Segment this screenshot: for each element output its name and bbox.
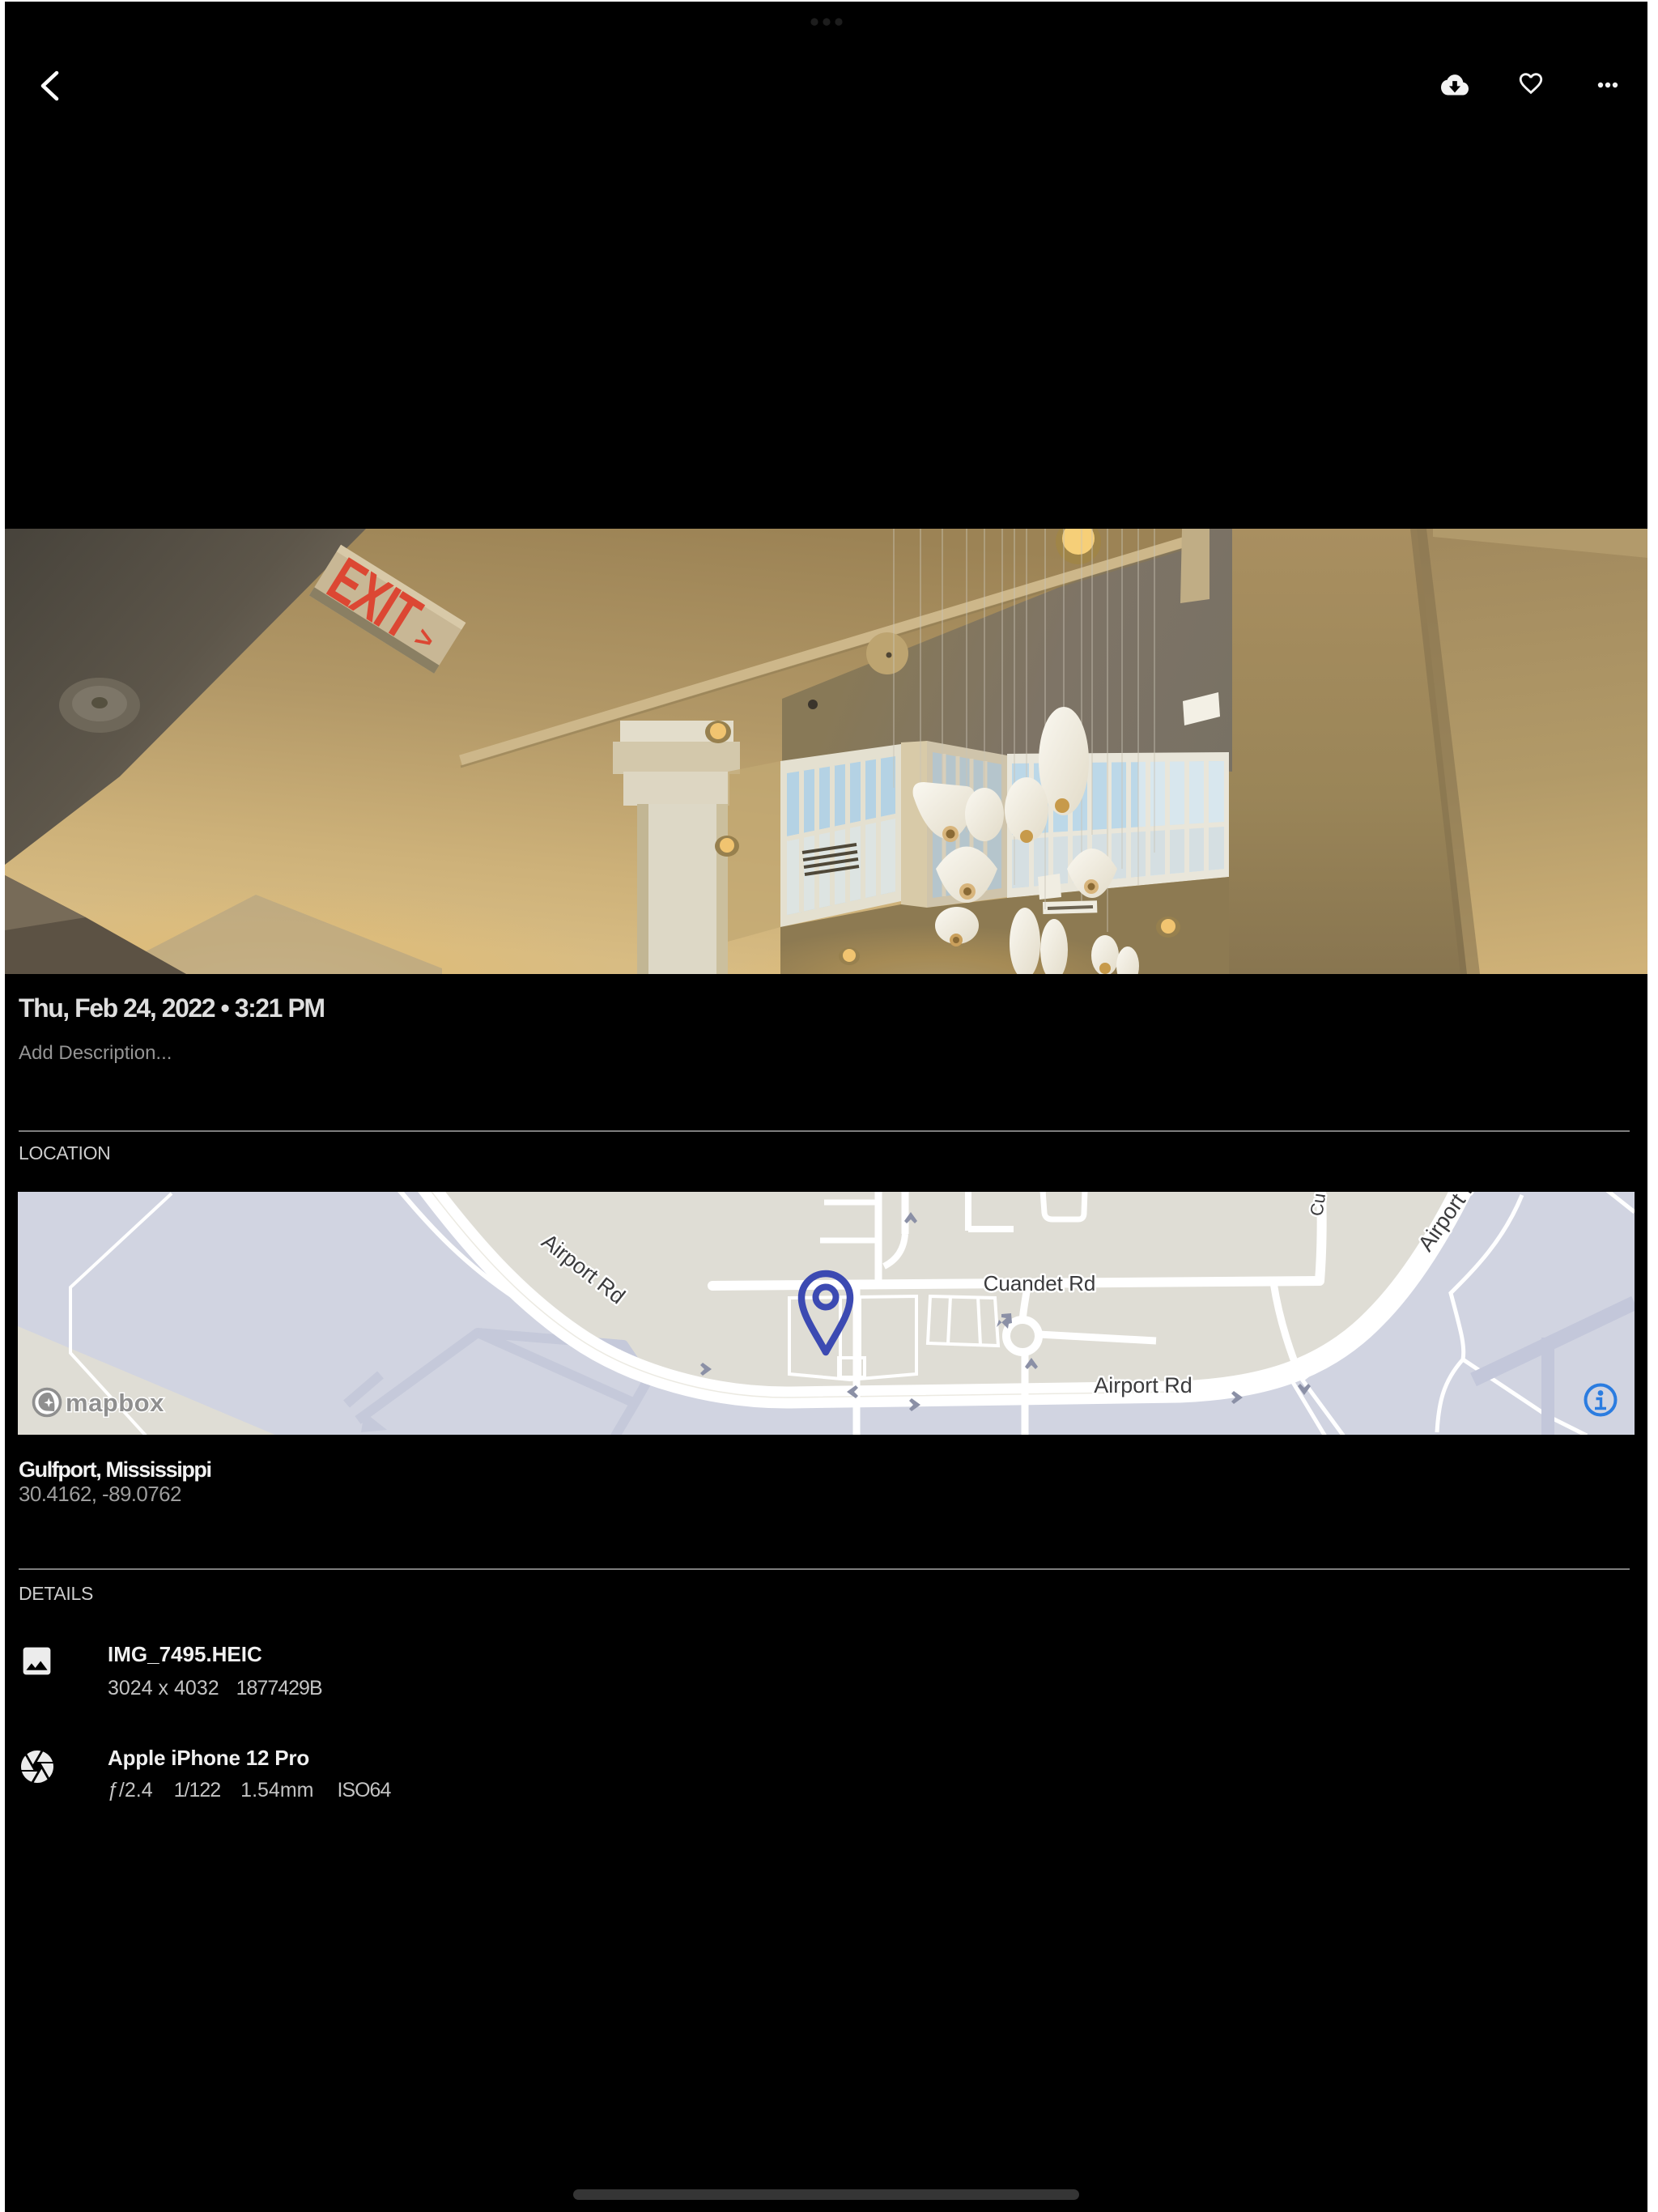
svg-text:mapbox: mapbox xyxy=(66,1389,164,1417)
svg-text:Cu: Cu xyxy=(1306,1192,1329,1217)
svg-text:Airport Rd: Airport Rd xyxy=(1094,1373,1192,1397)
svg-text:Cuandet Rd: Cuandet Rd xyxy=(984,1271,1096,1295)
